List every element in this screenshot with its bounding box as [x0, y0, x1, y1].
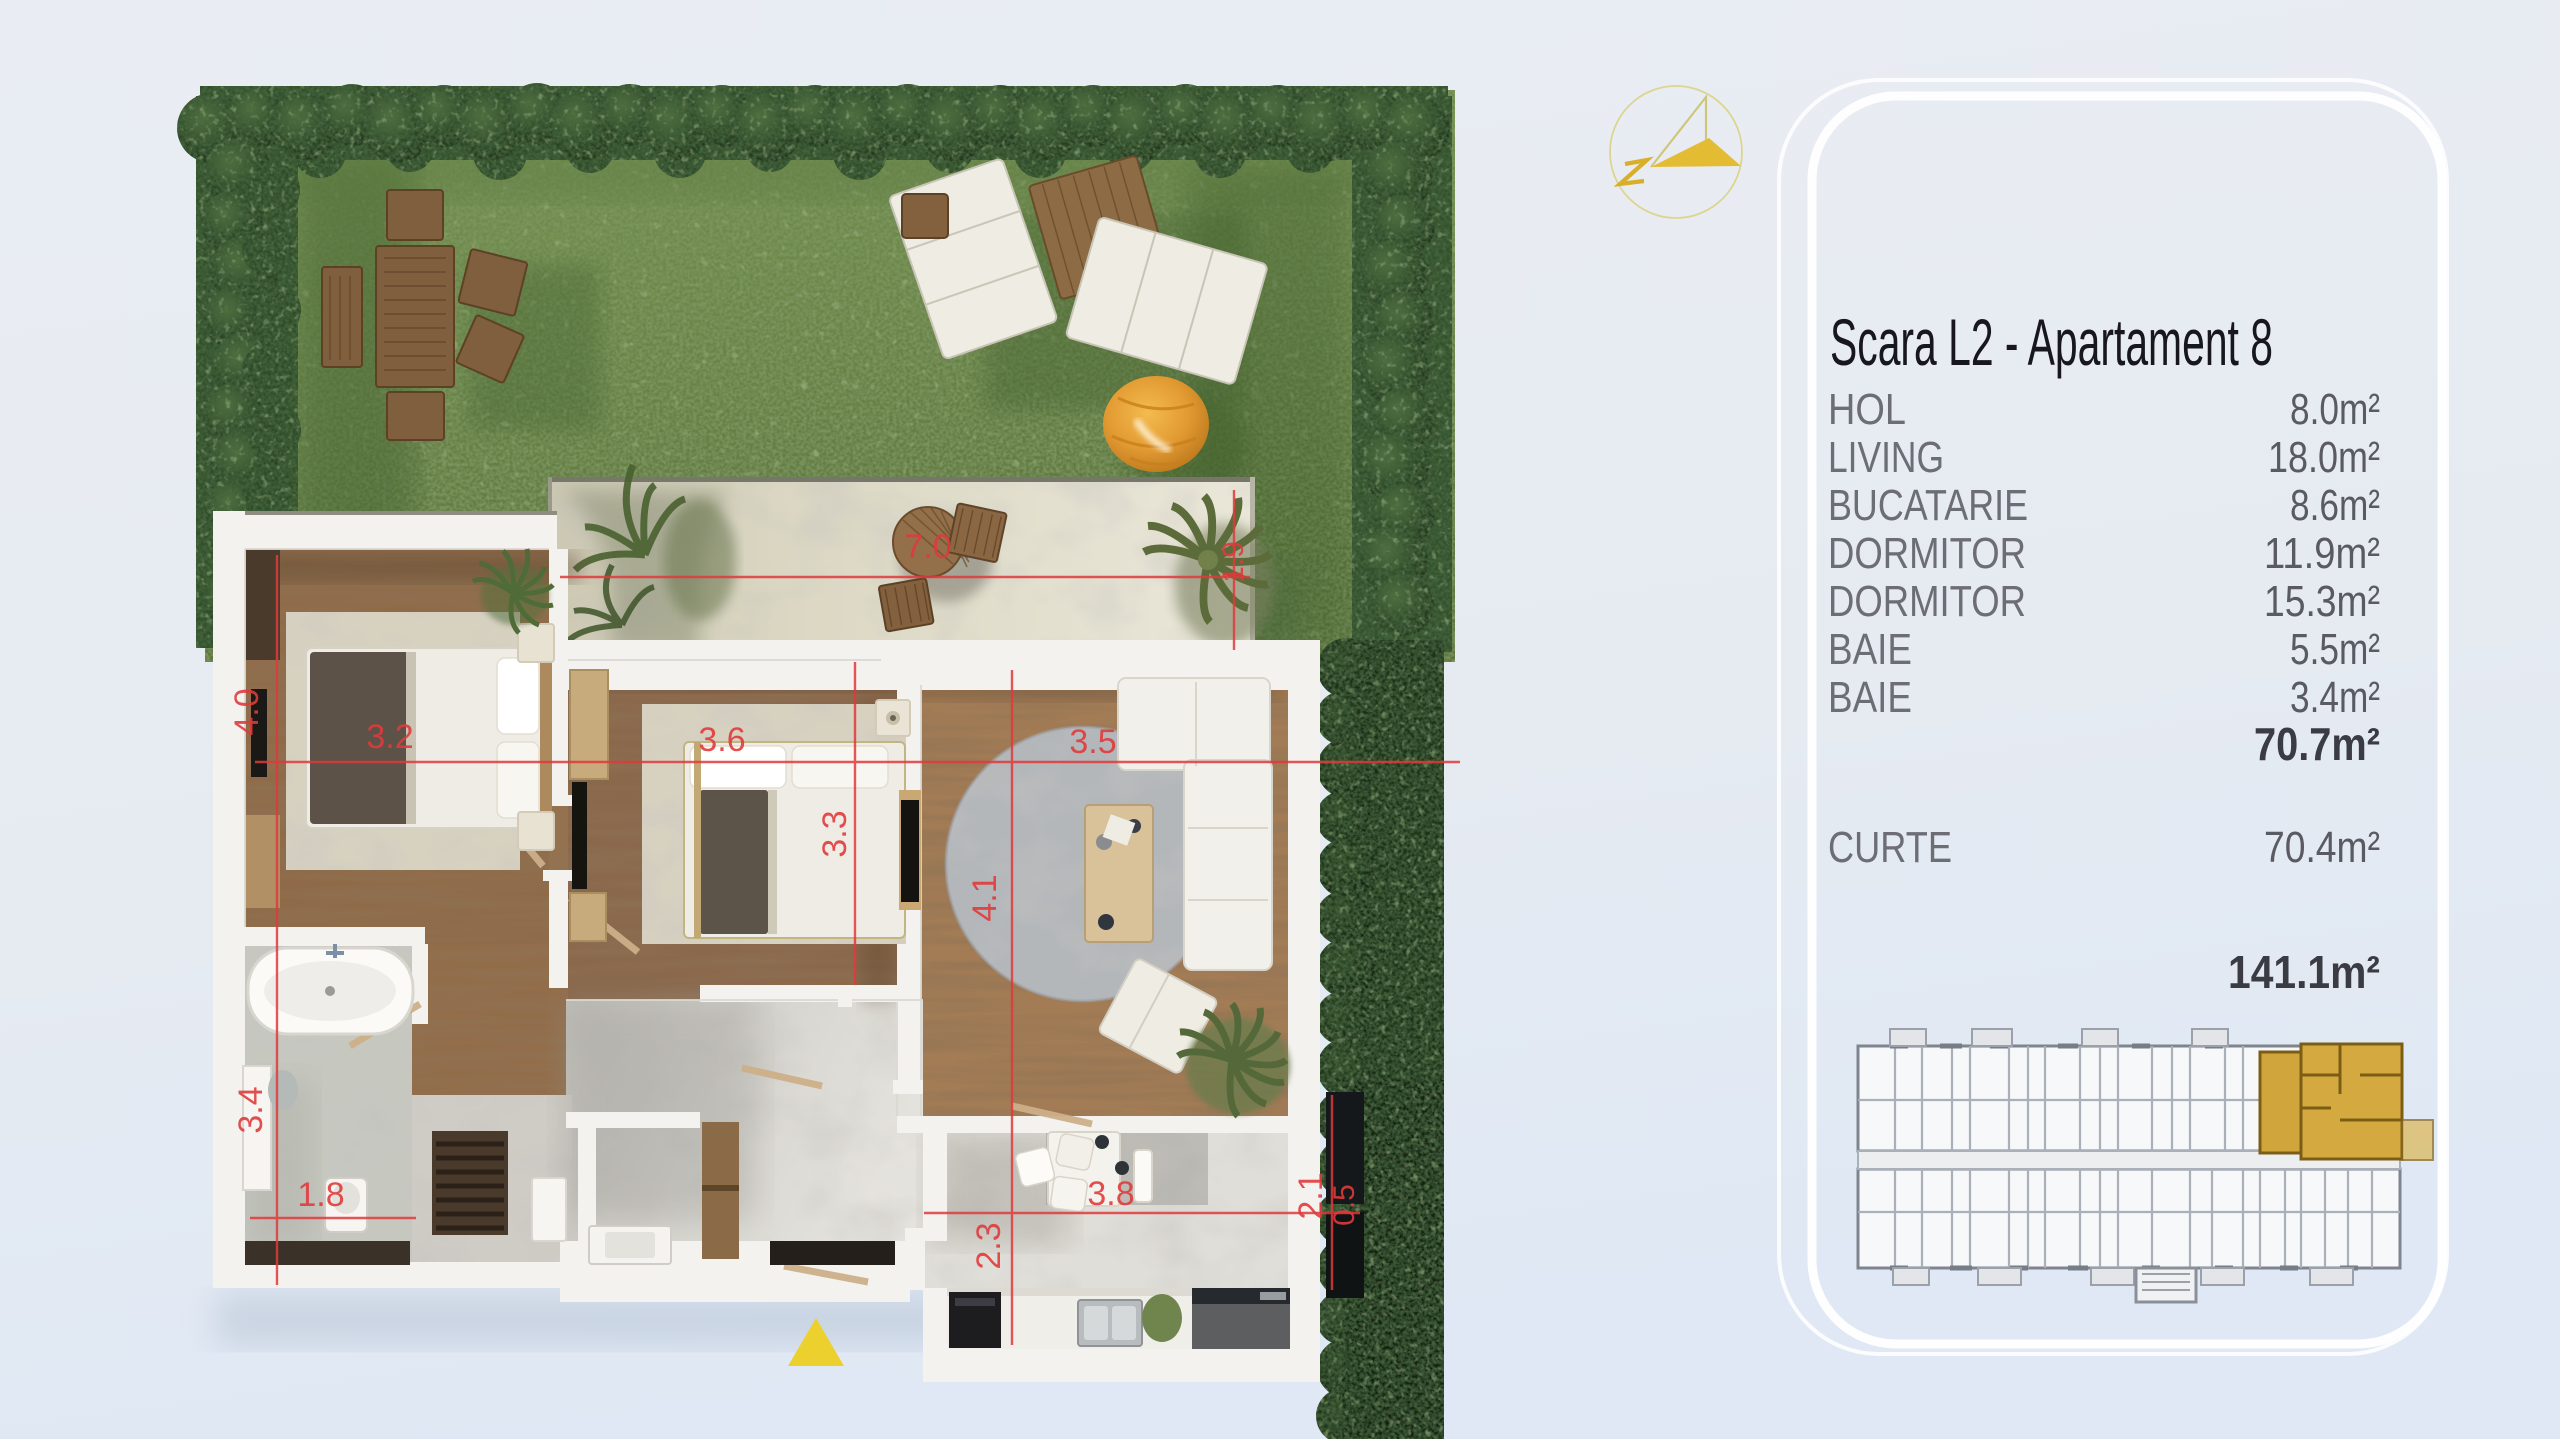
svg-text:11.9m²: 11.9m² — [2264, 529, 2380, 578]
svg-text:5.5m²: 5.5m² — [2290, 625, 2380, 674]
svg-text:4.0: 4.0 — [228, 688, 266, 735]
svg-text:7.0: 7.0 — [904, 528, 951, 566]
svg-text:3.4m²: 3.4m² — [2290, 673, 2380, 722]
svg-text:8.6m²: 8.6m² — [2290, 481, 2380, 530]
svg-text:3.3: 3.3 — [816, 810, 854, 857]
svg-text:15.3m²: 15.3m² — [2264, 577, 2380, 626]
svg-text:BAIE: BAIE — [1828, 673, 1912, 722]
svg-text:3.8: 3.8 — [1087, 1175, 1134, 1213]
svg-text:8.0m²: 8.0m² — [2290, 385, 2380, 434]
svg-text:3.6: 3.6 — [698, 721, 745, 759]
svg-text:3.4: 3.4 — [232, 1086, 270, 1133]
svg-text:LIVING: LIVING — [1828, 433, 1944, 482]
svg-text:BAIE: BAIE — [1828, 625, 1912, 674]
svg-text:141.1m²: 141.1m² — [2228, 946, 2380, 998]
svg-text:HOL: HOL — [1828, 385, 1906, 434]
svg-text:70.4m²: 70.4m² — [2264, 823, 2380, 872]
svg-text:2.3: 2.3 — [970, 1222, 1008, 1269]
svg-text:1.8: 1.8 — [297, 1176, 344, 1214]
svg-text:18.0m²: 18.0m² — [2268, 433, 2380, 482]
svg-text:Scara L2 - Apartament 8: Scara L2 - Apartament 8 — [1830, 305, 2273, 379]
svg-text:70.7m²: 70.7m² — [2254, 718, 2380, 770]
svg-text:2.1: 2.1 — [1292, 1172, 1330, 1219]
svg-text:DORMITOR: DORMITOR — [1828, 577, 2026, 626]
svg-text:BUCATARIE: BUCATARIE — [1828, 481, 2028, 530]
svg-text:0.5: 0.5 — [1328, 1184, 1361, 1226]
svg-text:4.1: 4.1 — [966, 874, 1004, 921]
svg-text:1.9: 1.9 — [1217, 541, 1250, 583]
svg-text:3.5: 3.5 — [1069, 723, 1116, 761]
svg-text:DORMITOR: DORMITOR — [1828, 529, 2026, 578]
svg-text:CURTE: CURTE — [1828, 823, 1952, 872]
svg-text:3.2: 3.2 — [366, 718, 413, 756]
